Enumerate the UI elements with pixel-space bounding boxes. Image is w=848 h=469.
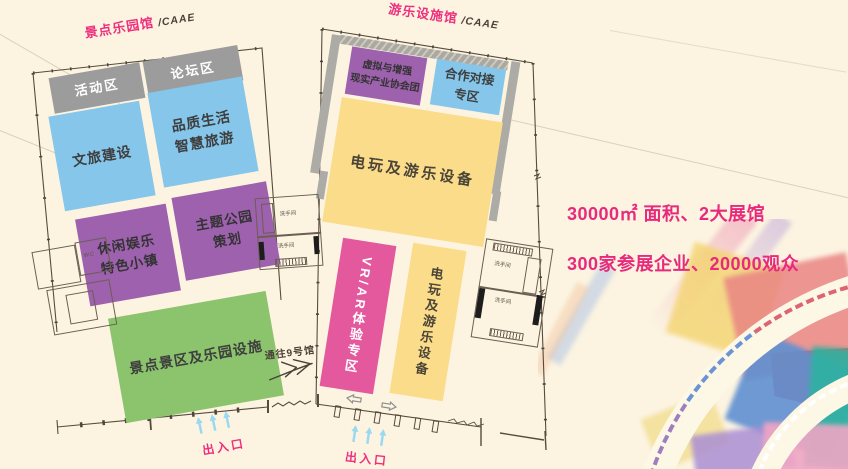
- restroom-label: 洗手间: [280, 211, 297, 218]
- zone-arcade-amusement-main: 电玩及游乐设备: [322, 97, 503, 247]
- caae-brand-mark: /CAAE: [461, 15, 500, 32]
- restroom-block-middle: 洗手间 洗手间: [255, 194, 324, 270]
- up-arrow-icon: [350, 425, 359, 443]
- double-chevron-arrow-icon: [266, 356, 318, 384]
- wc-room: [65, 290, 98, 324]
- stats-line-1: 30000㎡ 面积、2大展馆: [567, 200, 799, 226]
- wc-room: [31, 245, 81, 290]
- up-arrow-icon: [208, 413, 218, 431]
- exit-direction-arrow-icon: [346, 394, 396, 411]
- stats-line-2: 300家参展企业、20000观众: [567, 250, 799, 276]
- exhibition-stats: 30000㎡ 面积、2大展馆 300家参展企业、20000观众: [567, 200, 799, 276]
- to-hall9-sign: 通往9号馆: [264, 341, 319, 387]
- wc-block: W.C: [29, 235, 123, 338]
- restroom-room: [261, 203, 275, 234]
- restroom-label: 洗手间: [278, 244, 295, 251]
- zone-culture-tourism: 文旅建设: [48, 101, 155, 212]
- up-arrow-icon: [364, 427, 373, 445]
- zone-quality-life-smart-tourism: 品质生活 智慧旅游: [147, 76, 258, 187]
- floorplan-canvas: 活动区 论坛区 文旅建设 品质生活 智慧旅游 休闲娱乐 特色小镇 主题公园 策划…: [0, 0, 848, 469]
